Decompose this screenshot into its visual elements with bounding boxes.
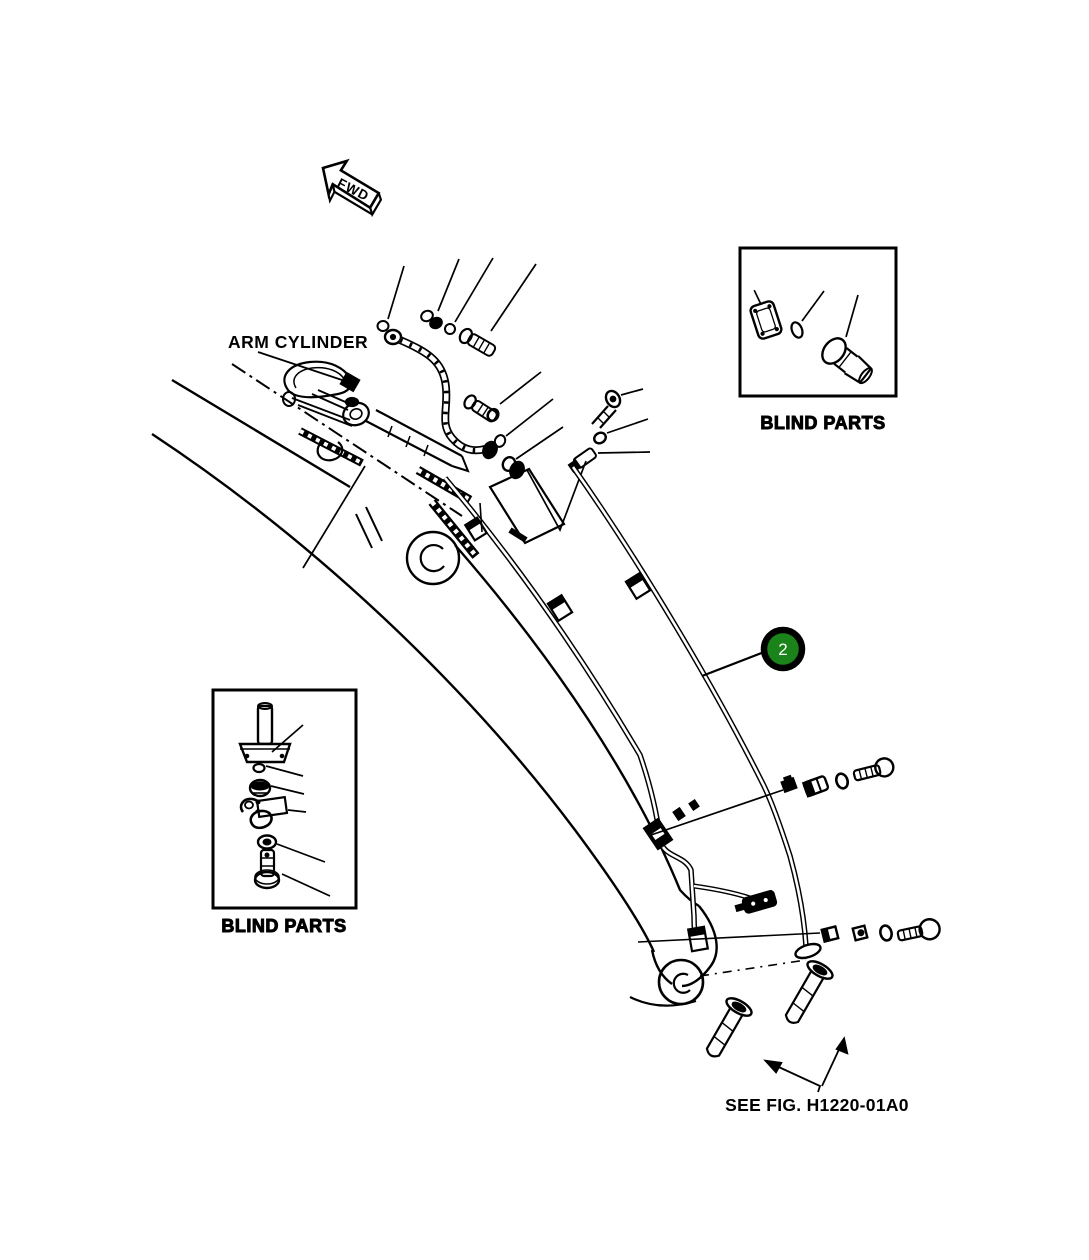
mounting-pin-1 bbox=[699, 995, 754, 1063]
loop-clamp-nut bbox=[341, 373, 359, 390]
blind-parts-top-label: BLIND PARTS bbox=[760, 413, 885, 433]
boom-hatch-marks bbox=[356, 507, 382, 548]
o-ring bbox=[445, 324, 455, 334]
arm-cylinder-leader bbox=[258, 352, 345, 381]
blind-parts-box-bottom: BLIND PARTS bbox=[213, 690, 356, 936]
blind-parts-bottom-label: BLIND PARTS bbox=[221, 916, 346, 936]
pipe-end-flange bbox=[794, 941, 822, 960]
arm-cylinder-label: ARM CYLINDER bbox=[228, 332, 368, 352]
boom-hole-inner bbox=[421, 545, 444, 571]
callout-leader bbox=[702, 652, 764, 676]
bolt bbox=[457, 327, 497, 359]
bolt-round-head bbox=[896, 917, 941, 945]
washer bbox=[879, 924, 893, 941]
washer bbox=[428, 316, 443, 330]
clamp-bolt bbox=[689, 800, 699, 811]
leader-line bbox=[651, 790, 783, 835]
sleeve bbox=[803, 776, 828, 797]
see-fig-label: SEE FIG. H1220-01A0 bbox=[725, 1095, 909, 1115]
boom-hole-detail bbox=[407, 532, 459, 584]
fitting-row-upper bbox=[651, 756, 895, 835]
nut bbox=[853, 926, 868, 941]
callout-number[interactable]: 2 bbox=[778, 640, 787, 659]
washer bbox=[592, 431, 607, 446]
fwd-arrow-label: FWD bbox=[335, 175, 372, 204]
blind-parts-box-top: BLIND PARTS bbox=[740, 248, 896, 433]
bolt bbox=[852, 756, 895, 783]
detail-box-border bbox=[740, 248, 896, 396]
boom-tip-left bbox=[652, 950, 672, 984]
bolt-shank bbox=[592, 406, 616, 428]
clamp-bolt bbox=[673, 808, 685, 821]
callout-2[interactable]: 2 bbox=[702, 630, 802, 676]
right-fastener-cluster bbox=[568, 388, 650, 472]
leader-line bbox=[638, 933, 820, 942]
fwd-arrow: FWD bbox=[311, 153, 389, 221]
bushing bbox=[250, 780, 270, 796]
gland-nut bbox=[346, 398, 358, 406]
interior-leader-line bbox=[303, 466, 365, 568]
washer bbox=[834, 772, 849, 790]
parts-diagram-page: FWD bbox=[0, 0, 1089, 1260]
plug bbox=[781, 775, 797, 791]
plug bbox=[822, 926, 838, 941]
hose-end-fitting bbox=[480, 439, 500, 461]
pipe-left bbox=[445, 478, 697, 946]
mounting-pins bbox=[699, 958, 847, 1092]
fitting-row-lower bbox=[638, 917, 941, 945]
hydraulic-pipes bbox=[445, 467, 822, 961]
o-ring bbox=[378, 321, 389, 331]
mounting-pin-2 bbox=[778, 958, 835, 1029]
arrowhead bbox=[766, 1061, 781, 1072]
boom-boss-hole bbox=[674, 974, 690, 993]
boom-foot-edge bbox=[630, 997, 696, 1006]
bracket-plate bbox=[490, 469, 564, 543]
diagram-canvas: FWD bbox=[0, 0, 1089, 1260]
boss-centerline bbox=[700, 960, 806, 976]
